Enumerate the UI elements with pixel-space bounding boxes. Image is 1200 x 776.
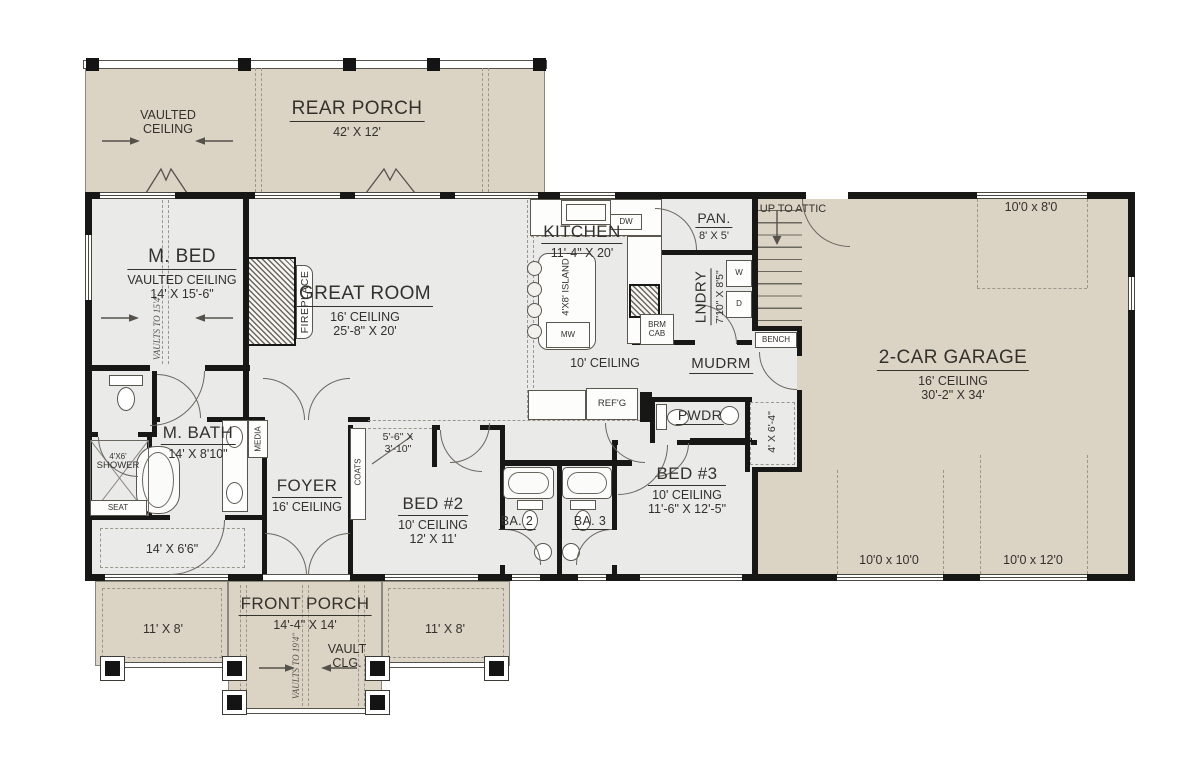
room-dims: 25'-8" X 20' (297, 324, 433, 338)
brm-line1: BRM (648, 320, 666, 329)
door-swing (450, 423, 490, 463)
refrigerator-label: REF'G (598, 398, 626, 409)
toilet-bowl (117, 387, 135, 411)
window (85, 235, 92, 300)
room-name: M. BATH (161, 423, 236, 445)
island-label: 4'X8' ISLAND (561, 258, 572, 316)
porch-post (238, 58, 251, 71)
room-dims: 42' X 12' (290, 125, 425, 139)
garage-door-track-dashed (943, 470, 944, 574)
m-bed-label: M. BED VAULTED CEILING 14' X 15'-6" (127, 246, 236, 301)
porch-column (222, 656, 247, 681)
wall-segment (85, 365, 150, 371)
closet-dims-line2: 3'-10" (383, 443, 414, 455)
fireplace-firebox (247, 257, 296, 346)
kitchen-label: KITCHEN 11'-4" X 20' (541, 222, 622, 260)
ridge-dashed-line (255, 68, 256, 192)
window (455, 192, 538, 199)
garage-door-track-dashed (977, 199, 978, 288)
porch-column (365, 656, 390, 681)
garage-door-size: 10'0 x 10'0 (859, 553, 919, 567)
ridge-dashed-line (261, 68, 262, 192)
wall-segment (797, 390, 802, 472)
porch-post (343, 58, 356, 71)
attic-label: UP TO ATTIC (760, 203, 826, 215)
room-ceiling: 16' CEILING (877, 374, 1029, 388)
bathtub-inner (567, 472, 607, 494)
wall-segment (1128, 192, 1135, 581)
door-swing (157, 374, 201, 418)
room-name: REAR PORCH (290, 98, 425, 122)
dishwasher-label: DW (619, 217, 632, 226)
window (100, 192, 175, 199)
wall-segment (752, 467, 758, 574)
sink (226, 482, 243, 504)
porch-rail (390, 662, 486, 668)
vault-clg-note: VAULT CLG. (328, 642, 366, 671)
room-dims: 12' X 11' (398, 532, 468, 546)
bathtub-inner (508, 472, 549, 494)
window (385, 574, 478, 581)
wall-segment (85, 432, 98, 437)
room-name: BED #3 (648, 464, 726, 486)
room-dims: 14' X 8'10" (161, 447, 236, 461)
room-dims: 11'-4" X 20' (541, 246, 622, 260)
vault-arrow-left (194, 313, 234, 323)
front-door-swing (308, 533, 350, 575)
dryer-label: D (736, 299, 742, 308)
vaulted-ceiling-note: VAULTED CEILING (140, 108, 196, 137)
window (640, 574, 742, 581)
room-name: LNDRY (693, 269, 712, 326)
wall-segment (348, 417, 370, 422)
laundry-label: LNDRY (693, 269, 712, 326)
window (560, 192, 615, 199)
room-dims: 14'-4" X 14' (239, 618, 372, 632)
window (105, 574, 228, 581)
bed2-label: BED #2 10' CEILING 12' X 11' (398, 494, 468, 546)
vaulted-ceiling-line2: CEILING (140, 122, 196, 136)
bed3-label: BED #3 10' CEILING 11'-6" X 12'-5" (648, 464, 726, 516)
room-name: 2-CAR GARAGE (877, 347, 1029, 371)
room-ceiling: 16' CEILING (297, 310, 433, 324)
roof-break-mark (365, 166, 417, 194)
bathtub (503, 467, 554, 499)
microwave-label: MW (561, 330, 575, 339)
room-ceiling: VAULTED CEILING (127, 273, 236, 287)
window (1128, 277, 1135, 310)
stairs-down-arrow (770, 210, 784, 246)
room-name: MUDRM (689, 355, 753, 374)
ceiling-break-dashed (368, 420, 640, 421)
room-name: BED #2 (398, 494, 468, 516)
porch-column (100, 656, 125, 681)
ba3-label: BA. 3 (572, 514, 609, 530)
wall-segment (152, 515, 170, 520)
floor-plan: VAULTED CEILING REAR PORCH 42' X 12' M. … (0, 0, 1200, 776)
shower-label: 4'X6' SHOWER (97, 452, 140, 472)
bench-label: BENCH (762, 335, 790, 344)
room-name: FRONT PORCH (239, 594, 372, 616)
wall-segment (650, 250, 752, 255)
ba2-label: BA. 2 (499, 514, 536, 530)
garage-door-track-dashed (837, 470, 838, 574)
toilet-tank (570, 500, 596, 510)
ceiling-dashed-line (488, 68, 489, 192)
media-label: MEDIA (254, 426, 263, 451)
vault-note: VAULTS TO 15'4" (152, 294, 162, 360)
porch-column (484, 656, 509, 681)
rear-porch-beam (83, 60, 547, 69)
front-porch-label: FRONT PORCH 14'-4" X 14' (239, 594, 372, 632)
room-name: GREAT ROOM (297, 283, 433, 307)
porch-rail (247, 708, 367, 714)
stool (527, 261, 542, 276)
range (629, 284, 660, 318)
wall-segment (737, 340, 752, 345)
vault-line1: VAULT (328, 642, 366, 656)
stool (527, 282, 542, 297)
front-door-opening (263, 574, 350, 581)
porch-post (86, 58, 99, 71)
room-name: BA. 2 (499, 514, 536, 530)
garage-door-opening-top (977, 192, 1087, 199)
rear-porch-label: REAR PORCH 42' X 12' (290, 98, 425, 139)
garage-door-track-dashed (977, 288, 1087, 289)
wall-segment (225, 515, 262, 520)
pantry-label: PAN. 8' X 5' (695, 210, 732, 242)
porch-column (222, 690, 247, 715)
window (578, 574, 606, 581)
ceiling-note: 10' CEILING (570, 356, 640, 370)
vault-arrow-left (194, 136, 234, 146)
wall-segment (650, 397, 752, 402)
closet-dims: 4' X 6'-4" (766, 411, 778, 453)
vault-note: VAULTS TO 19'4" (291, 633, 301, 699)
wall-segment (432, 425, 437, 467)
brm-line2: CAB (648, 329, 666, 338)
room-dims: 8' X 5' (695, 230, 732, 242)
garage-door-track-dashed (1087, 455, 1088, 574)
front-door-swing (265, 533, 307, 575)
wall-segment (640, 392, 652, 422)
wall-segment (500, 565, 505, 574)
porch-post (533, 58, 546, 71)
toilet-tank (656, 404, 667, 430)
wall-segment (752, 192, 758, 331)
door-swing (759, 352, 797, 390)
laundry-dims: 7'10" X 8'5" (714, 270, 726, 324)
garage-door-size: 10'0 x 12'0 (1003, 553, 1063, 567)
room-dims: 11'-6" X 12'-5" (648, 502, 726, 516)
vault-arrow-right (101, 136, 141, 146)
closet-dashed (368, 428, 432, 429)
porch-wing-dims: 11' X 8' (425, 622, 465, 636)
garage-door-size: 10'0 x 8'0 (1005, 200, 1058, 214)
closet-dims-line1: 5'-6" X (383, 431, 414, 443)
garage-door-track-dashed (980, 455, 981, 574)
seat-label: SEAT (108, 503, 128, 512)
coats-label: COATS (354, 459, 363, 486)
room-name: M. BED (127, 246, 236, 270)
broom-cabinet-label: BRM CAB (648, 320, 666, 338)
powder-label: PWDR (676, 407, 724, 425)
vault-arrow-right (100, 313, 140, 323)
wall-segment (752, 326, 802, 331)
room-name: PAN. (695, 210, 732, 228)
garage-door-opening-left (837, 574, 943, 581)
vault-line2: CLG. (328, 656, 366, 670)
bathtub (562, 467, 612, 499)
wall-segment (752, 467, 802, 472)
wall-segment (797, 326, 802, 356)
stool (527, 303, 542, 318)
kitchen-counter (528, 390, 586, 420)
roof-break-mark (145, 166, 189, 194)
room-dims: 14' X 15'-6" (127, 287, 236, 301)
door-swing (655, 208, 697, 250)
room-dims: 30'-2" X 34' (877, 388, 1029, 402)
door-swing (505, 529, 541, 565)
room-ceiling: 10' CEILING (648, 488, 726, 502)
room-ceiling: 16' CEILING (272, 500, 342, 514)
garage-door-track-dashed (1087, 199, 1088, 288)
kitchen-sink-basin (566, 204, 606, 221)
window (255, 192, 340, 199)
stool (527, 324, 542, 339)
porch-column (365, 690, 390, 715)
room-ceiling: 10' CEILING (398, 518, 468, 532)
ceiling-dashed-line (482, 68, 483, 192)
toilet-tank (109, 375, 143, 386)
porch-wing-dims: 11' X 8' (143, 622, 183, 636)
room-name: FOYER (272, 476, 342, 498)
mudroom-label: MUDRM (689, 355, 753, 374)
porch-rail (124, 662, 224, 668)
vaulted-ceiling-line1: VAULTED (140, 108, 196, 122)
room-name: BA. 3 (572, 514, 609, 530)
door-opening (806, 192, 848, 199)
door-swing (308, 378, 350, 420)
door-swing (263, 378, 305, 420)
closet-dims: 14' X 6'6" (146, 542, 198, 556)
garage-door-opening-right (980, 574, 1087, 581)
washer-label: W (735, 268, 743, 277)
wall-segment (612, 565, 617, 574)
bed2-closet-label: 5'-6" X 3'-10" (383, 431, 414, 455)
shower-name: SHOWER (97, 461, 140, 472)
wall-segment (205, 365, 250, 371)
garage-label: 2-CAR GARAGE 16' CEILING 30'-2" X 34' (877, 347, 1029, 402)
window (512, 574, 540, 581)
foyer-label: FOYER 16' CEILING (272, 476, 342, 514)
m-bath-label: M. BATH 14' X 8'10" (161, 423, 236, 461)
toilet-tank (517, 500, 543, 510)
wall-segment (690, 438, 752, 443)
room-name: KITCHEN (541, 222, 622, 244)
porch-post (427, 58, 440, 71)
window (355, 192, 440, 199)
door-swing (576, 529, 612, 565)
room-name: PWDR (676, 407, 724, 425)
great-room-label: GREAT ROOM 16' CEILING 25'-8" X 20' (297, 283, 433, 338)
